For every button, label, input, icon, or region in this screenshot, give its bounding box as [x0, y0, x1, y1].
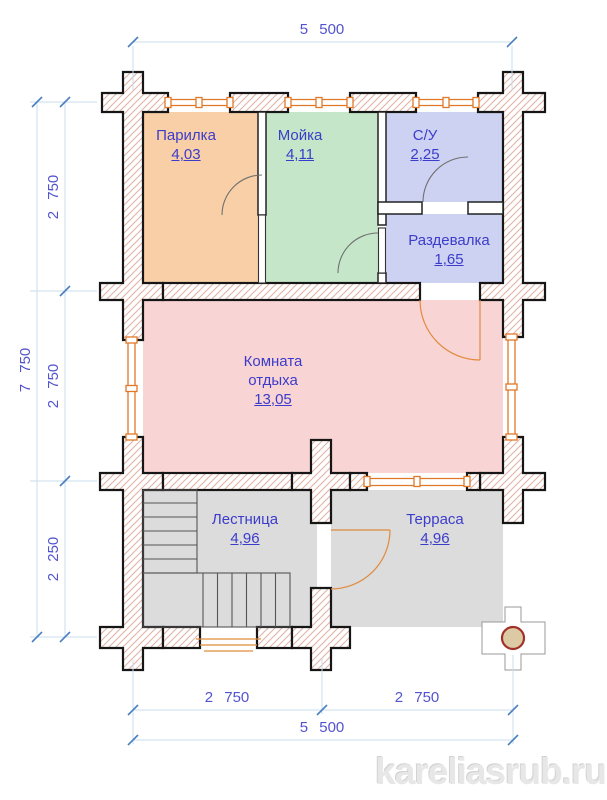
room-area: 13,05	[233, 390, 313, 409]
label-terrasa: Терраса 4,96	[390, 510, 480, 548]
watermark: kareliasrub.ru	[338, 751, 606, 793]
room-name: Лестница	[200, 510, 290, 529]
room-name: Парилка	[145, 126, 227, 145]
room-name: Раздевалка	[393, 231, 505, 250]
column-symbol	[482, 607, 545, 744]
room-name: Терраса	[390, 510, 480, 529]
label-lestnitsa: Лестница 4,96	[200, 510, 290, 548]
room-area: 4,11	[257, 145, 343, 164]
label-su: С/У 2,25	[385, 126, 465, 164]
room-area: 2,25	[385, 145, 465, 164]
dim-top-total: 5 500	[222, 21, 422, 38]
dim-bottom-seg-1: 2 750	[167, 689, 287, 706]
dim-bottom-seg-2: 2 750	[357, 689, 477, 706]
floor-plan-canvas: Парилка 4,03 Мойка 4,11 С/У 2,25 Раздева…	[0, 0, 607, 800]
room-name: Комната отдыха	[233, 352, 313, 390]
label-razdevalka: Раздевалка 1,65	[393, 231, 505, 269]
room-area: 4,96	[200, 529, 290, 548]
entrance-steps	[196, 639, 261, 651]
room-name: С/У	[385, 126, 465, 145]
label-komnata-otdyha: Комната отдыха 13,05	[233, 352, 313, 409]
dim-left-seg-2: 2 750	[44, 331, 64, 441]
dim-left-seg-3: 2 250	[44, 504, 64, 614]
label-moika: Мойка 4,11	[257, 126, 343, 164]
room-name: Мойка	[257, 126, 343, 145]
room-area: 1,65	[393, 250, 505, 269]
room-komnata-otdyha	[143, 300, 503, 473]
room-area: 4,96	[390, 529, 480, 548]
label-parilka: Парилка 4,03	[145, 126, 227, 164]
dim-bottom-total: 5 500	[222, 719, 422, 736]
room-area: 4,03	[145, 145, 227, 164]
dim-left-total: 7 750	[16, 315, 36, 425]
dim-left-seg-1: 2 750	[44, 142, 64, 252]
